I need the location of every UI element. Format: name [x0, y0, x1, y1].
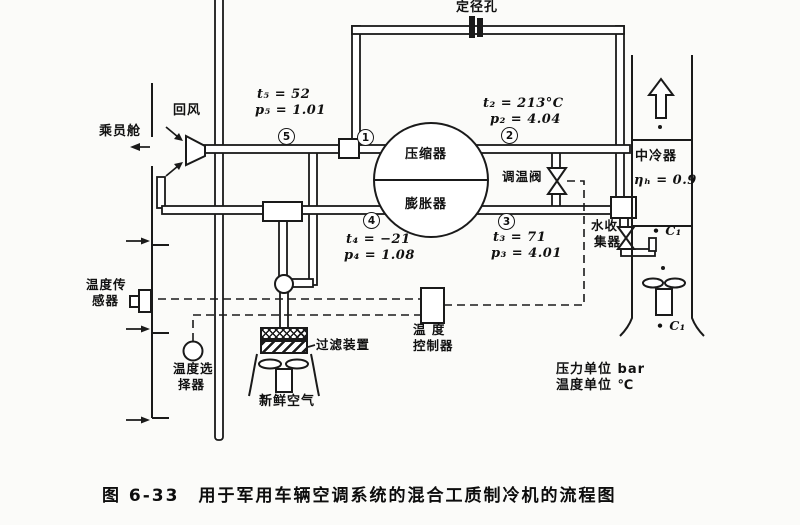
cooling-duct-right-wall — [692, 55, 704, 336]
fresh-duct-left-wall — [249, 354, 257, 396]
cooling-fan-motor — [656, 289, 672, 315]
temp-sensor-tip — [130, 296, 139, 307]
p2-value: p₂ = 4.04 — [490, 112, 561, 127]
temp-valve-label: 调温阀 — [502, 170, 543, 184]
temp-controller-label-line2: 控制器 — [413, 339, 454, 353]
fresh-fan-blade-right — [286, 360, 308, 369]
cooling-fan-blade-left — [643, 279, 663, 288]
return-arrow2-head — [141, 326, 150, 333]
filter-label: 过滤装置 — [316, 338, 370, 352]
cooling-air-mark-top: • C₁ — [652, 223, 682, 238]
fresh-duct-right-wall — [311, 354, 319, 396]
mixing-junction-box — [339, 139, 359, 158]
fresh-air-riser-pipe — [309, 151, 317, 285]
cooling-fan-blade-right — [665, 279, 685, 288]
cabin-label: 乘员舱 — [99, 125, 141, 139]
t2-value: t₂ = 213°C — [483, 96, 564, 111]
orifice-loop-left-pipe — [352, 26, 360, 143]
return-air-label: 回风 — [173, 104, 201, 118]
figure-caption: 图 6-33 用于军用车辆空调系统的混合工质制冷机的流程图 — [102, 481, 616, 506]
fresh-air-label: 新鲜空气 — [259, 395, 315, 409]
temp-valve-upper-triangle — [548, 168, 566, 181]
temp-sensor-body — [139, 290, 151, 312]
water-collector-label-line1: 水收 — [591, 219, 618, 233]
state-point-3: 3 — [498, 213, 515, 230]
water-drain-outlet-stub — [649, 238, 656, 251]
filter-mesh-band — [260, 327, 308, 340]
fresh-fan-blade-left — [259, 360, 281, 369]
temp-selector-knob — [184, 342, 203, 361]
state-point-1: 1 — [357, 129, 374, 146]
orifice-loop-top-pipe — [352, 26, 624, 34]
temp-selector-label-line1: 温度选 — [173, 362, 214, 376]
orifice-symbol-left — [469, 16, 475, 38]
p3-value: p₃ = 4.01 — [491, 246, 562, 261]
cooling-air-dot-middle — [661, 266, 665, 270]
cooling-air-dot-top — [658, 125, 662, 129]
t4-value: t₄ = −21 — [346, 232, 411, 247]
intercooler-label: 中冷器 — [635, 150, 677, 164]
pressure-unit-note: 压力单位 bar — [556, 363, 645, 377]
state-point-2: 2 — [501, 127, 518, 144]
cabin-supply-stub-pipe — [157, 177, 165, 208]
orifice-label: 定径孔 — [456, 1, 498, 15]
flow-diagram-figure: 5 1 2 3 4 定径孔 乘员舱 回风 压缩器 膨胀器 调温阀 中冷器 水收 … — [0, 0, 800, 525]
t5-value: t₅ = 52 — [257, 87, 310, 102]
cabin-wall — [152, 83, 169, 418]
temp-selector-label-line2: 择器 — [178, 378, 205, 392]
cooling-air-mark-bottom: • C₁ — [656, 318, 686, 333]
filter-label-tick — [308, 345, 315, 347]
fresh-fan-motor — [276, 369, 292, 392]
return-air-arrow-bottom-shaft — [166, 166, 178, 176]
p4-value: p₄ = 1.08 — [344, 248, 415, 263]
compressor-label: 压缩器 — [405, 148, 447, 162]
fresh-air-from-filter-pipe — [280, 291, 288, 330]
temp-sensor-label-line2: 感器 — [92, 294, 119, 308]
t3-value: t₃ = 71 — [493, 230, 546, 245]
heat-exchanger-box — [263, 202, 302, 221]
return-arrow1-head — [141, 238, 150, 245]
intercooler-efficiency-value: ηₕ = 0.9 — [634, 173, 697, 188]
temp-controller-box — [421, 288, 444, 323]
orifice-symbol-right — [477, 18, 483, 37]
cooling-air-up-arrow — [649, 79, 673, 118]
temperature-unit-note: 温度单位 ℃ — [556, 379, 634, 393]
cabin-supply-arrow-head — [130, 143, 140, 151]
filter-element-band — [260, 340, 308, 354]
return-air-arrow-top-shaft — [166, 127, 178, 137]
fresh-air-to-exchanger-pipe — [279, 220, 287, 282]
return-arrow3-head — [141, 417, 150, 424]
fresh-air-junction-circle — [275, 275, 293, 293]
orifice-loop-right-pipe — [616, 26, 624, 202]
state-point-5: 5 — [278, 128, 295, 145]
state-point-4: 4 — [363, 212, 380, 229]
temp-sensor-label-line1: 温度传 — [86, 278, 127, 292]
p5-value: p₅ = 1.01 — [255, 103, 326, 118]
expander-label: 膨胀器 — [405, 198, 447, 212]
water-collector-label-line2: 集器 — [594, 235, 621, 249]
tall-duct-pipe — [215, 0, 223, 440]
temp-controller-label-line1: 温 度 — [413, 323, 445, 337]
return-air-cone — [186, 136, 205, 165]
temp-valve-lower-triangle — [548, 181, 566, 194]
